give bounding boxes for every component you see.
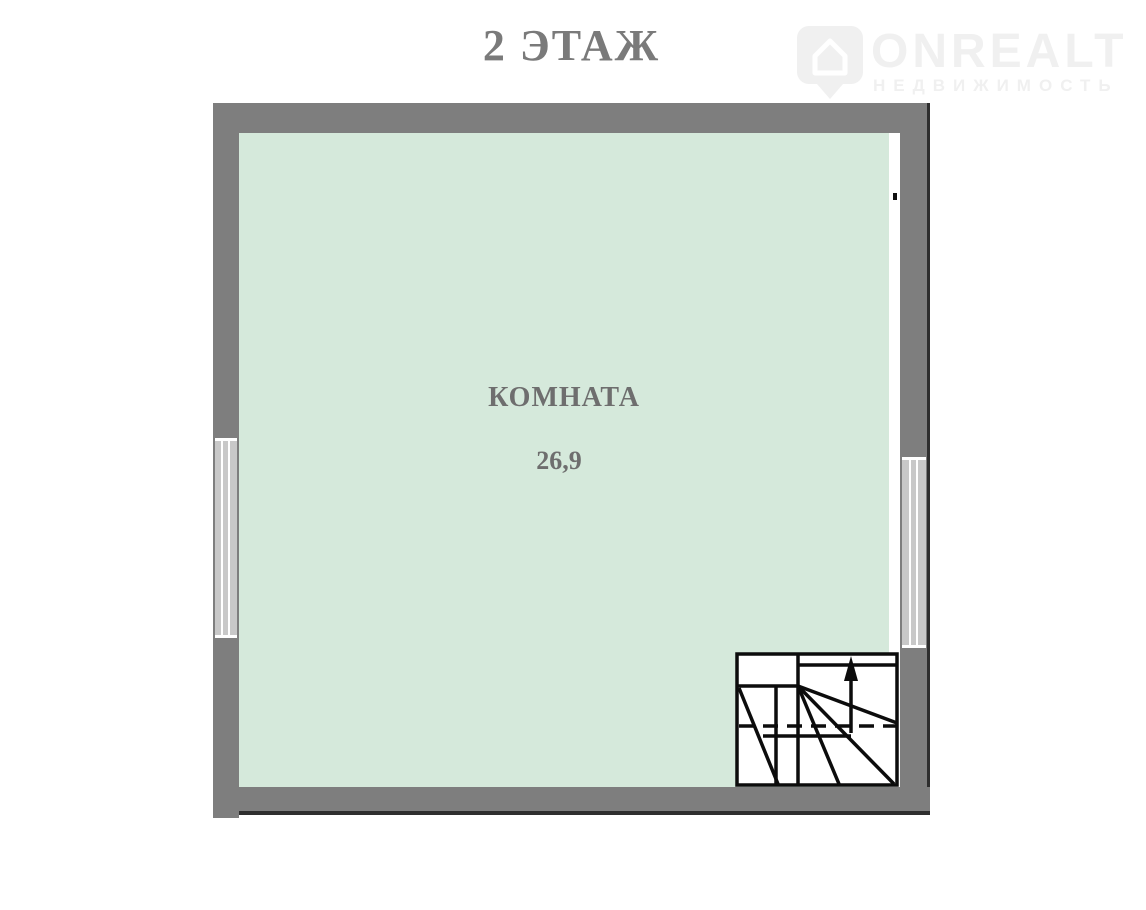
window-right [902,457,926,648]
wall-top [213,103,930,133]
window-pane-line [221,441,223,635]
wall-mark-dot [893,193,897,200]
room-area-value: 26,9 [229,446,889,476]
window-pane-line [916,460,918,645]
room-name: КОМНАТА [239,382,889,414]
staircase [735,650,907,790]
window-pane-line [909,460,911,645]
watermark-logo: ONREALT НЕДВИЖИМОСТЬ [795,24,1135,104]
wall-bottom [239,787,930,815]
room-label: КОМНАТА 26,9 [239,382,889,476]
page-canvas: 2 ЭТАЖ ONREALT НЕДВИЖИМОСТЬ [0,0,1146,910]
watermark-brand-text: ONREALT [871,28,1127,76]
watermark-tagline-text: НЕДВИЖИМОСТЬ [873,77,1119,94]
stair-outline [737,654,897,785]
house-pin-icon [797,26,863,100]
